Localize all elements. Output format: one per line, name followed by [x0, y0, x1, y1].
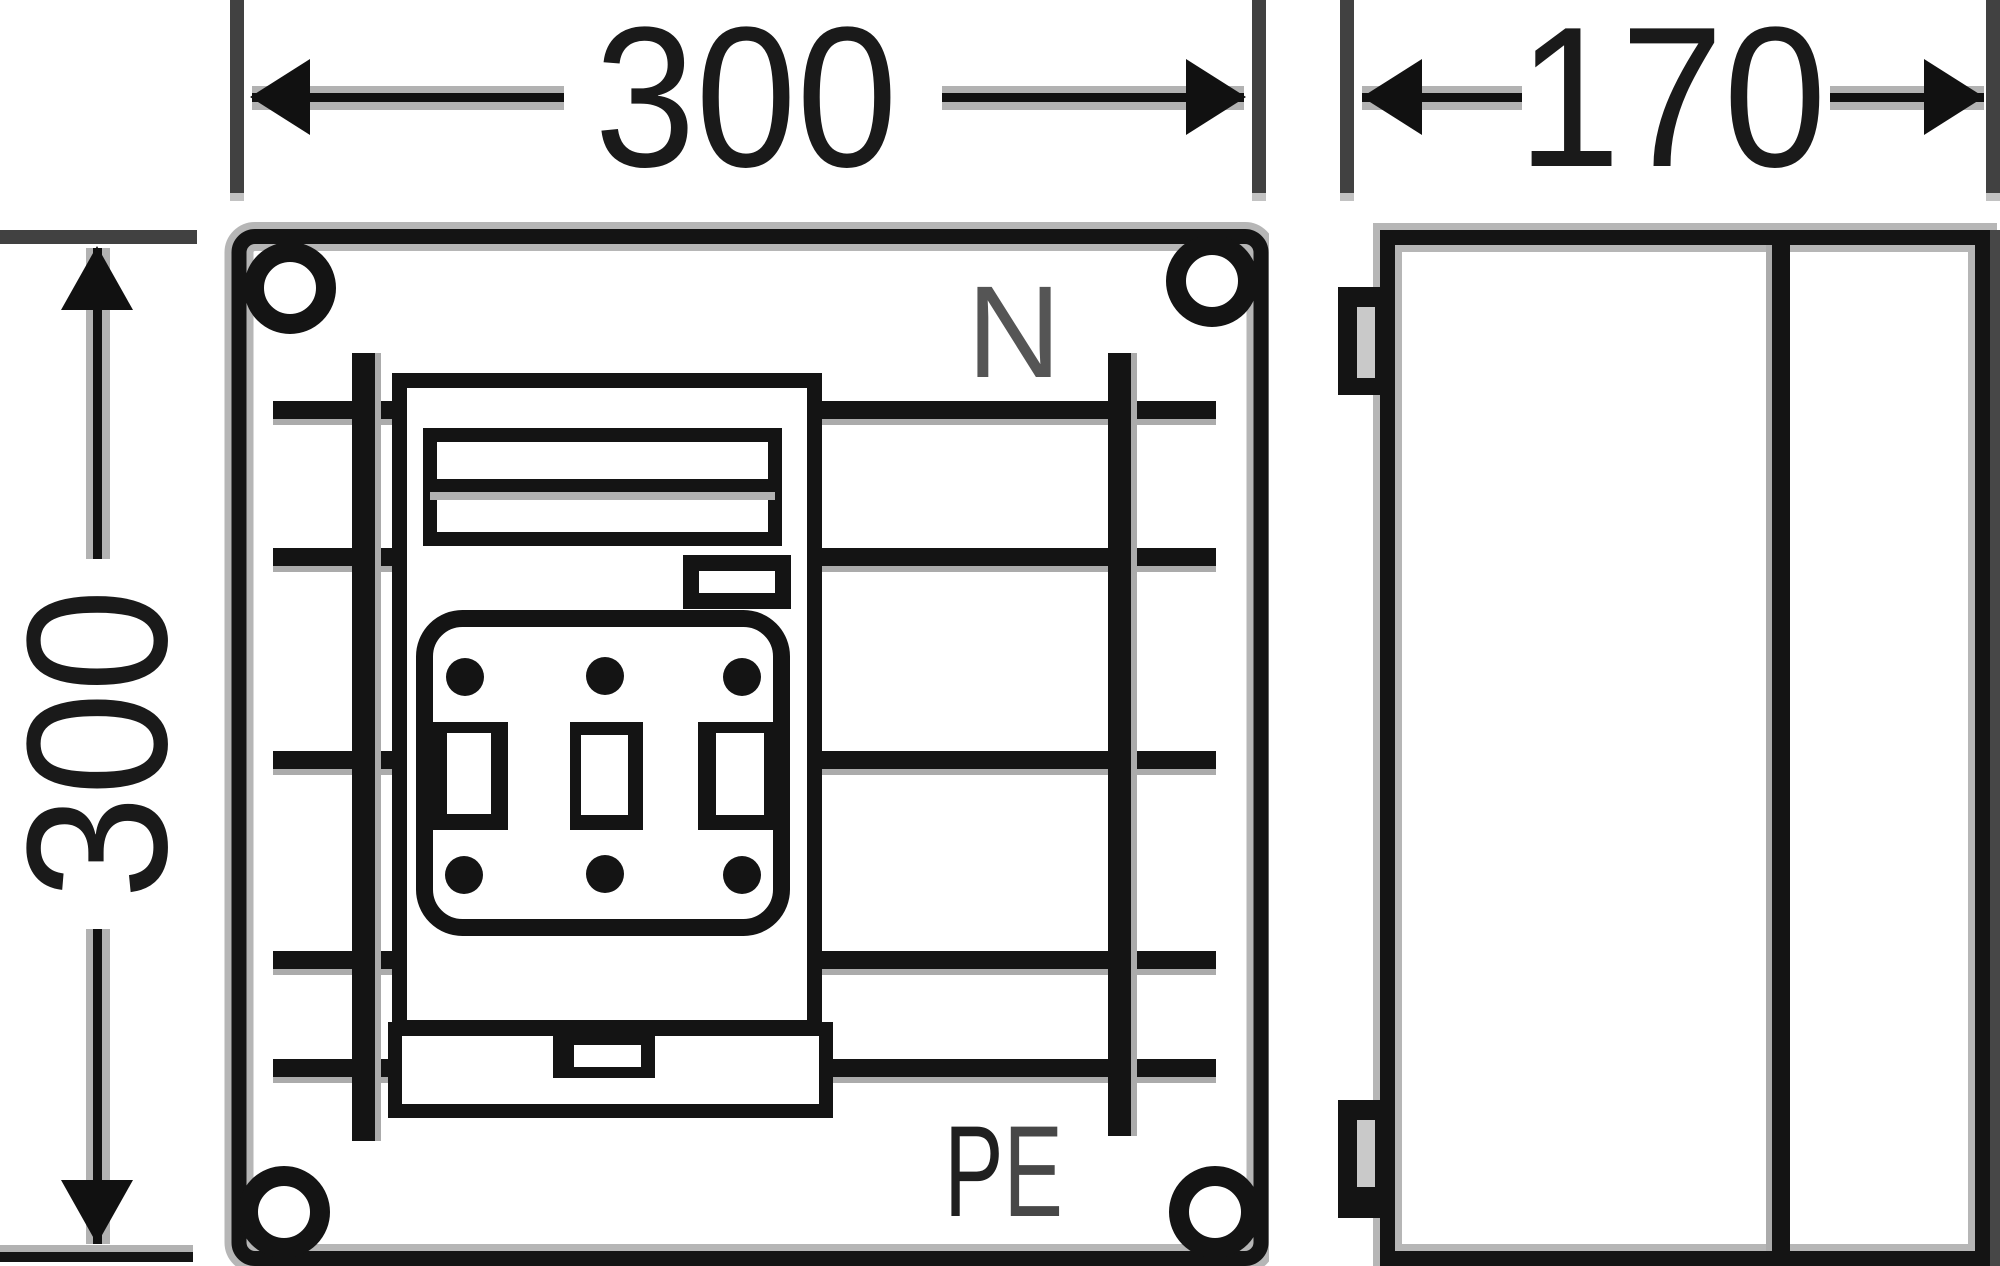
svg-text:170: 170 [1518, 0, 1827, 209]
svg-text:300: 300 [0, 589, 208, 899]
svg-text:300: 300 [595, 0, 898, 209]
svg-text:N: N [967, 258, 1062, 405]
svg-text:PE: PE [944, 1098, 1063, 1244]
